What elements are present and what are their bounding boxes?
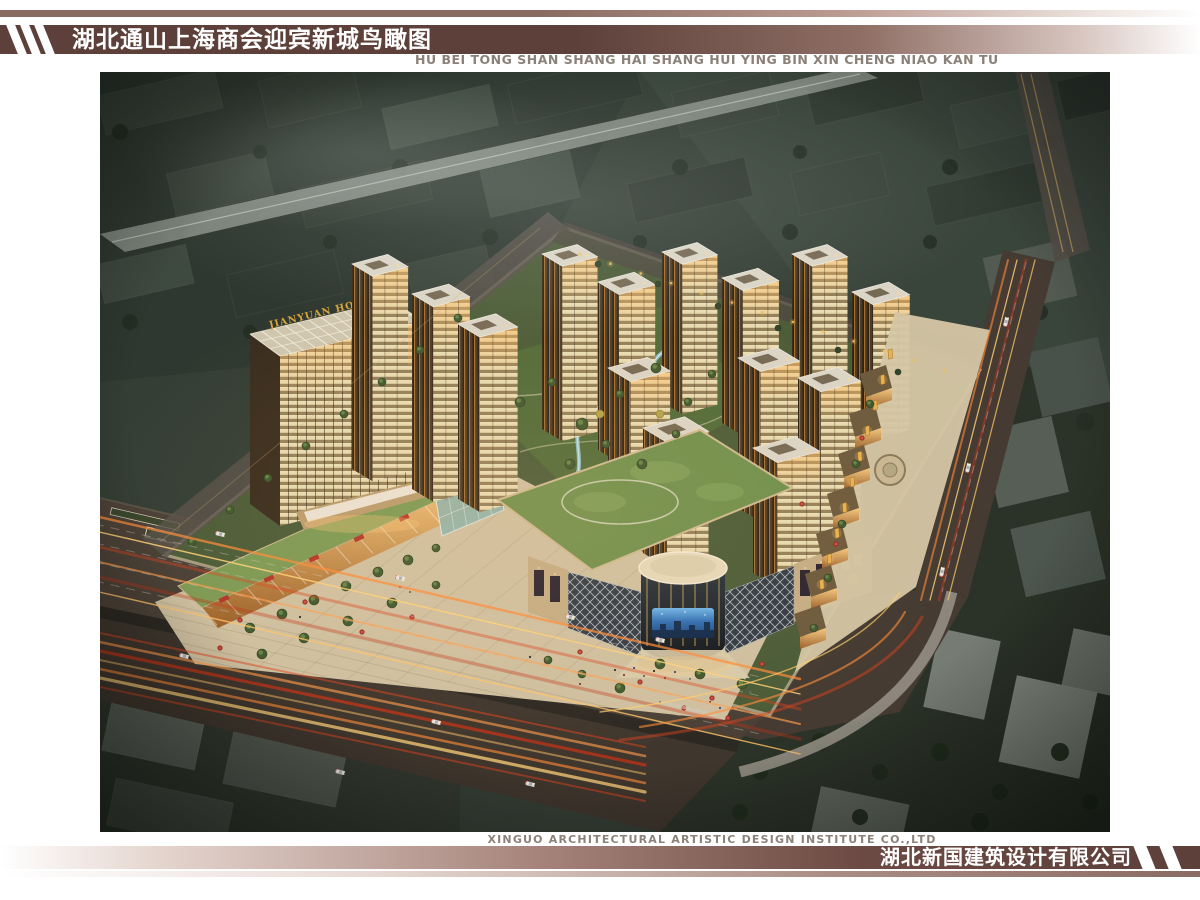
aerial-rendering: JIANYUAN HOTEL	[100, 72, 1110, 832]
presentation-board: 湖北通山上海商会迎宾新城鸟瞰图 HU BEI TONG SHAN SHANG H…	[0, 0, 1200, 900]
footer-thin-bar	[0, 871, 1200, 877]
aerial-rendering-scene: JIANYUAN HOTEL	[100, 72, 1110, 832]
page-title: 湖北通山上海商会迎宾新城鸟瞰图	[72, 26, 432, 54]
footer-company-cn: 湖北新国建筑设计有限公司	[880, 846, 1132, 869]
header-thin-bar	[0, 10, 1200, 17]
page-subtitle-pinyin: HU BEI TONG SHAN SHANG HAI SHANG HUI YIN…	[415, 52, 907, 67]
